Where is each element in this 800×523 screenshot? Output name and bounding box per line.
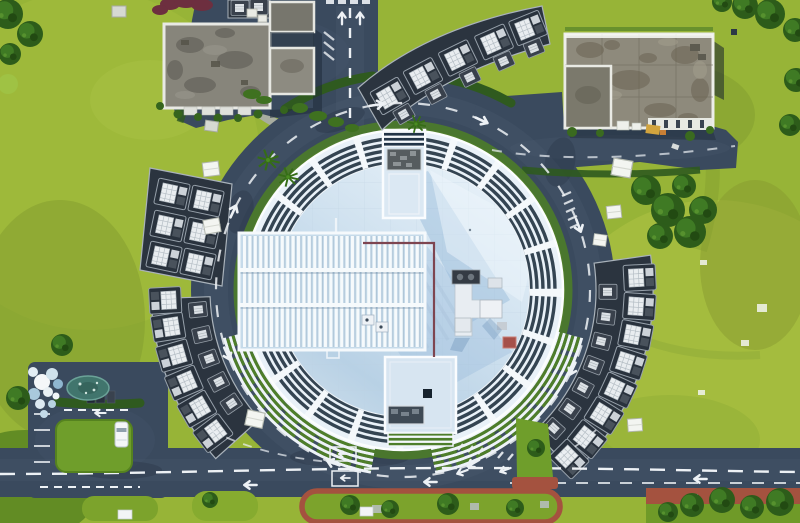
aerial-photo	[0, 0, 800, 523]
aerial-photo-stage	[0, 0, 800, 523]
central-hall	[224, 125, 581, 472]
roof-vent-tower	[383, 130, 425, 218]
white-van	[115, 422, 128, 447]
louvered-hall-west	[239, 233, 425, 350]
utility-pad	[112, 6, 126, 17]
teal-pond	[67, 376, 109, 400]
roof-plant-room	[385, 357, 456, 446]
grass-island	[192, 491, 258, 521]
office-building-northeast	[565, 27, 724, 141]
